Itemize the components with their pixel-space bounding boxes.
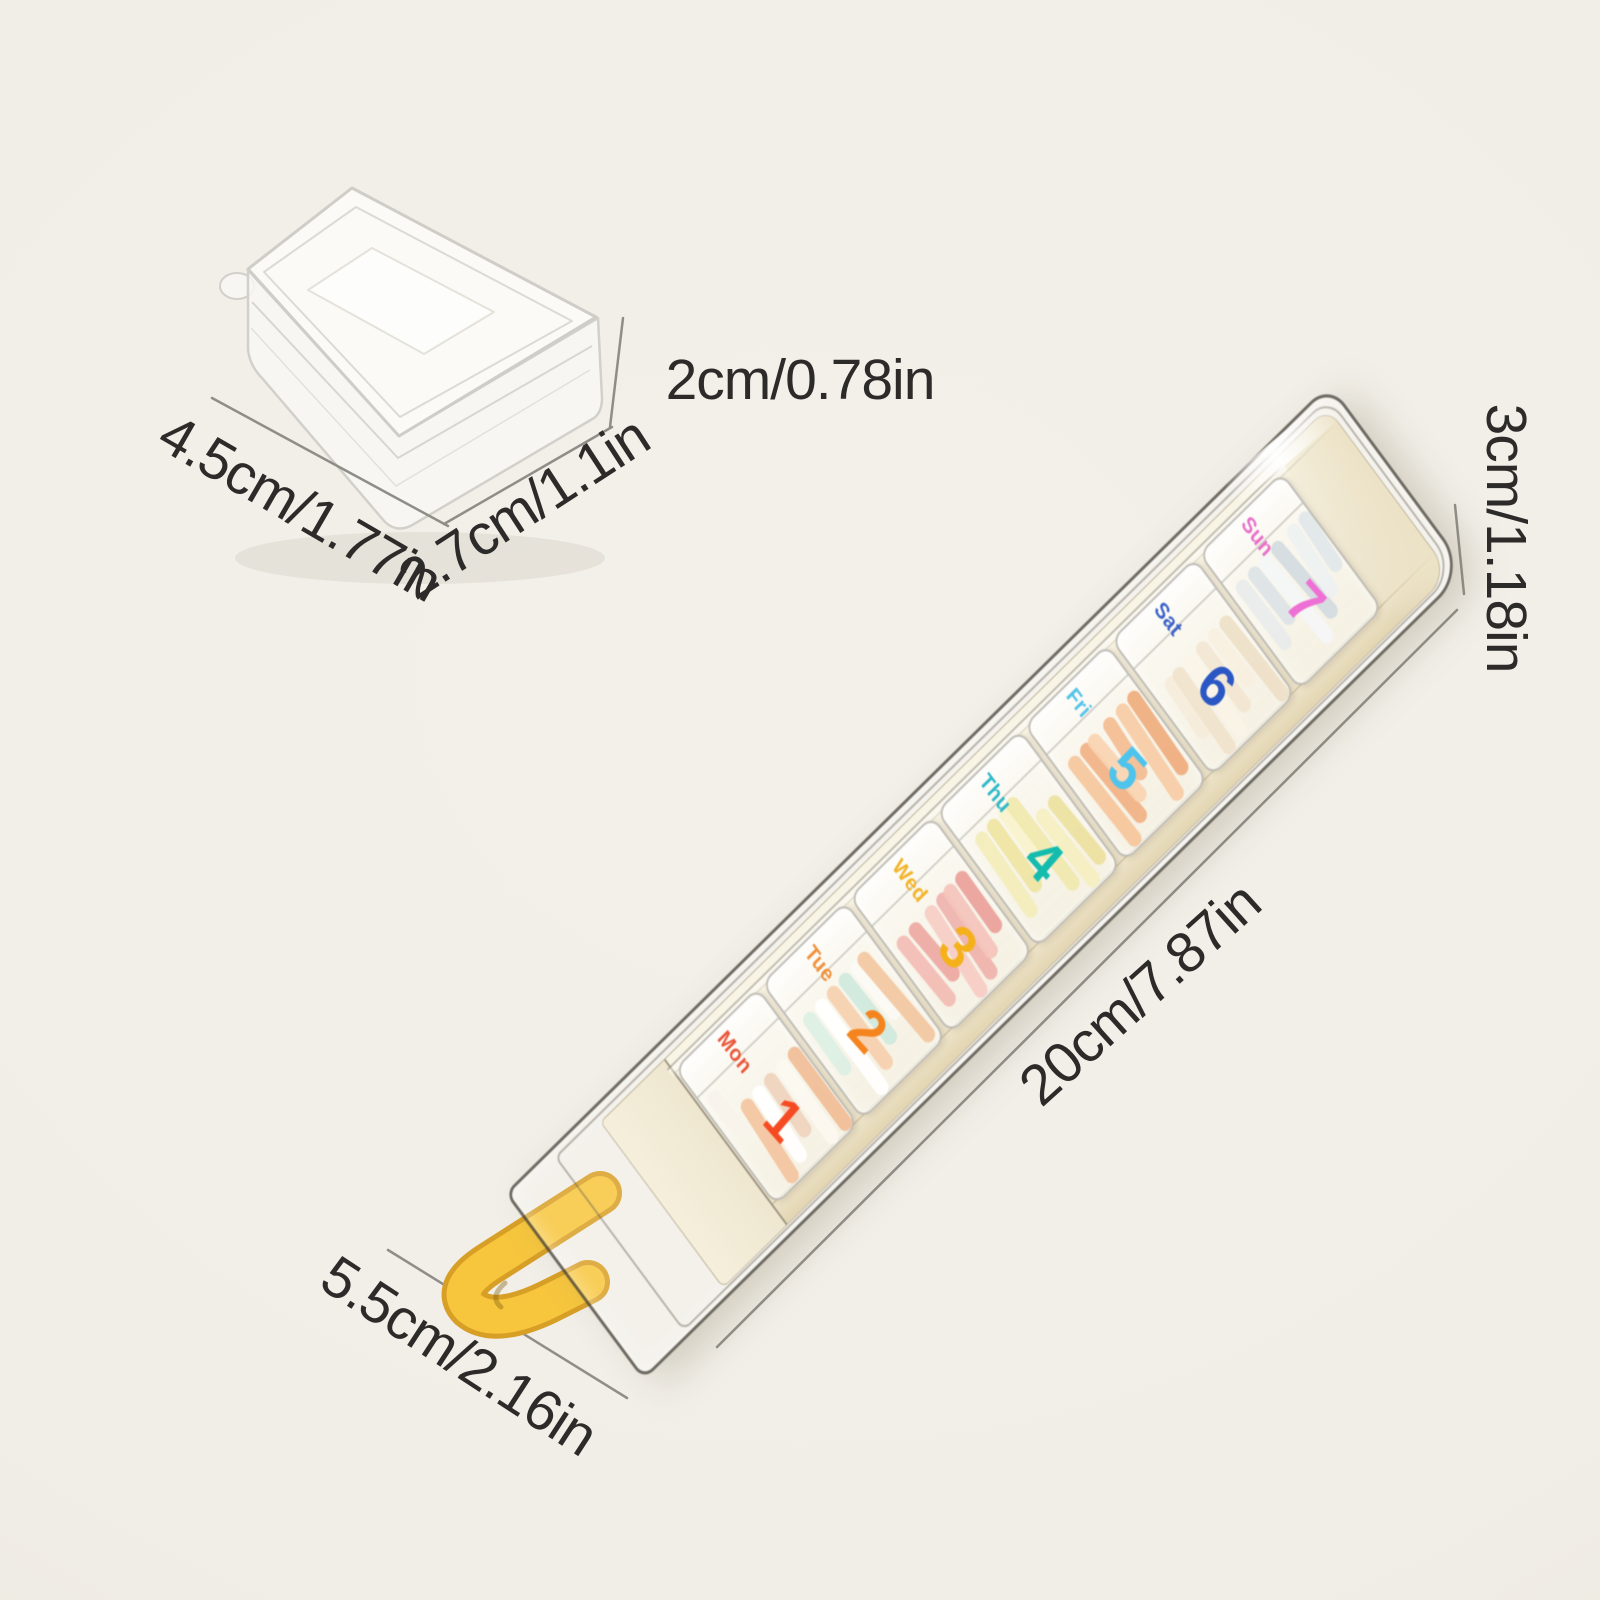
line-organizer-height xyxy=(1455,505,1464,594)
dim-label-organizer-height: 3cm/1.18in xyxy=(1473,404,1539,673)
product-photo-stage: Mon 1 Tue 2 Wed 3 xyxy=(0,0,1600,1600)
illustration-layer xyxy=(0,0,1600,1600)
dim-label-daily-box-height: 2cm/0.78in xyxy=(666,347,935,413)
